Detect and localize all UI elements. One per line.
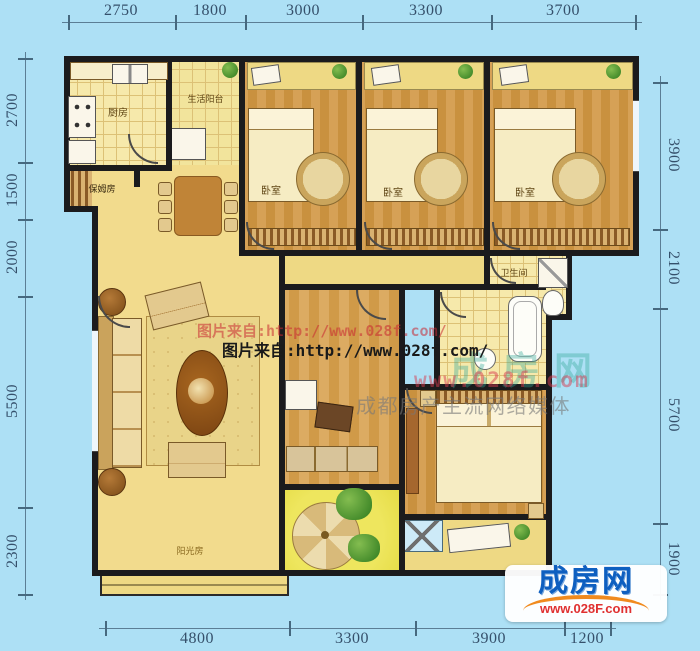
room-label-kitchen: 厨房: [64, 104, 172, 119]
dimension-label: 1800: [193, 2, 227, 20]
window-icon: [251, 64, 281, 86]
pillow: [367, 109, 437, 130]
dimension-label: 3900: [664, 138, 682, 172]
ruler-line-left: [25, 52, 26, 600]
room-label-bedroom2: 卧室: [368, 184, 418, 199]
shaft-duct: [401, 520, 443, 552]
dining-chair: [158, 200, 172, 214]
table-decor: [188, 378, 214, 404]
ruler-line-top: [62, 22, 642, 23]
dining-chair: [158, 182, 172, 196]
floorplan-screenshot: 2750 1800 3000 3300 3700 2700 1500 2000 …: [0, 0, 700, 651]
room-label-bathroom: 卫生间: [484, 266, 544, 279]
tv-console: [286, 446, 378, 472]
dimension-label: 1500: [4, 173, 22, 207]
dining-chair: [224, 182, 238, 196]
ruler-tick: [175, 15, 177, 30]
ruler-tick: [105, 621, 107, 636]
shaft-duct: [168, 128, 206, 160]
toilet-icon: [542, 290, 564, 316]
sofa-seat: [112, 318, 142, 468]
rug: [414, 152, 468, 206]
pillow: [495, 109, 575, 130]
watermark-slogan: 成都房产主流网络媒体: [356, 390, 571, 419]
dimension-label: 3000: [286, 2, 320, 20]
ruler-tick: [18, 58, 33, 60]
ruler-tick: [18, 296, 33, 298]
window-icon: [499, 64, 529, 86]
room-label-storage: 保姆房: [64, 182, 140, 195]
ruler-tick: [610, 621, 612, 636]
room-label-service-balcony: 生活阳台: [166, 92, 245, 105]
watermark-source-black: 图片来自:http://www.028f.com/: [222, 337, 488, 361]
ruler-tick: [362, 15, 364, 30]
ruler-tick: [18, 507, 33, 509]
pillow: [249, 109, 313, 130]
ruler-tick: [653, 308, 668, 310]
wall-segment: [399, 514, 546, 520]
dining-chair: [158, 218, 172, 232]
study-desk: [314, 402, 353, 433]
dimension-label: 1200: [570, 630, 604, 648]
dimension-label: 2100: [664, 251, 682, 285]
ruler-tick: [653, 229, 668, 231]
plant-icon: [336, 488, 372, 520]
room-label-sunroom: 阳光房: [140, 544, 240, 557]
ruler-tick: [18, 162, 33, 164]
wall-segment: [279, 484, 405, 490]
side-table: [98, 468, 126, 496]
dimension-label: 3300: [335, 630, 369, 648]
plant-icon: [222, 62, 238, 78]
armchair: [168, 442, 226, 478]
dining-chair: [224, 200, 238, 214]
ruler-tick: [653, 523, 668, 525]
plant-icon: [606, 64, 621, 79]
wall-segment: [64, 165, 172, 171]
plant-icon: [348, 534, 380, 562]
living-bay-window: [100, 574, 289, 596]
rug: [296, 152, 350, 206]
wall-segment: [484, 56, 490, 250]
window: [633, 100, 639, 172]
ruler-tick: [18, 594, 33, 596]
ruler-tick: [564, 621, 566, 636]
dimension-label: 3700: [546, 2, 580, 20]
ruler-tick: [68, 15, 70, 30]
ruler-tick: [635, 15, 637, 30]
rug: [552, 152, 606, 206]
ruler-tick: [18, 219, 33, 221]
room-label-bedroom3: 卧室: [500, 184, 550, 199]
ruler-tick: [653, 82, 668, 84]
dimension-label: 2700: [4, 93, 22, 127]
umbrella-center: [321, 531, 329, 539]
site-logo-title: 成房网: [505, 565, 667, 599]
dining-chair: [224, 218, 238, 232]
dimension-label: 3900: [472, 630, 506, 648]
watermark-site-url: www.028f.com: [414, 368, 590, 392]
study-cabinet: [285, 380, 317, 410]
dimension-label: 2750: [104, 2, 138, 20]
wall-segment: [356, 56, 362, 250]
plant-icon: [458, 64, 473, 79]
nightstand: [528, 503, 544, 519]
plant-icon: [332, 64, 347, 79]
dimension-label: 2300: [4, 534, 22, 568]
fridge-icon: [68, 140, 96, 164]
ruler-tick: [245, 15, 247, 30]
wall-segment: [239, 56, 245, 250]
dimension-label: 3300: [409, 2, 443, 20]
site-logo-card: 成房网 www.028F.com: [505, 565, 667, 622]
window-icon: [371, 64, 401, 86]
wall-segment: [92, 570, 552, 576]
ruler-line-right: [660, 76, 661, 600]
dimension-label: 2000: [4, 240, 22, 274]
wall-segment: [239, 250, 639, 256]
plant-icon: [514, 524, 530, 540]
room-label-bedroom1: 卧室: [246, 182, 296, 197]
wall-segment: [279, 284, 546, 290]
dimension-label: 5500: [4, 384, 22, 418]
ruler-tick: [491, 15, 493, 30]
ruler-tick: [289, 621, 291, 636]
kitchen-sink: [112, 64, 148, 84]
dimension-label: 4800: [180, 630, 214, 648]
wall-decor: [406, 408, 419, 494]
dimension-label: 5700: [664, 398, 682, 432]
dining-table: [174, 176, 222, 236]
ruler-tick: [415, 621, 417, 636]
ruler-line-bottom: [99, 628, 616, 629]
wall-segment: [279, 250, 285, 576]
